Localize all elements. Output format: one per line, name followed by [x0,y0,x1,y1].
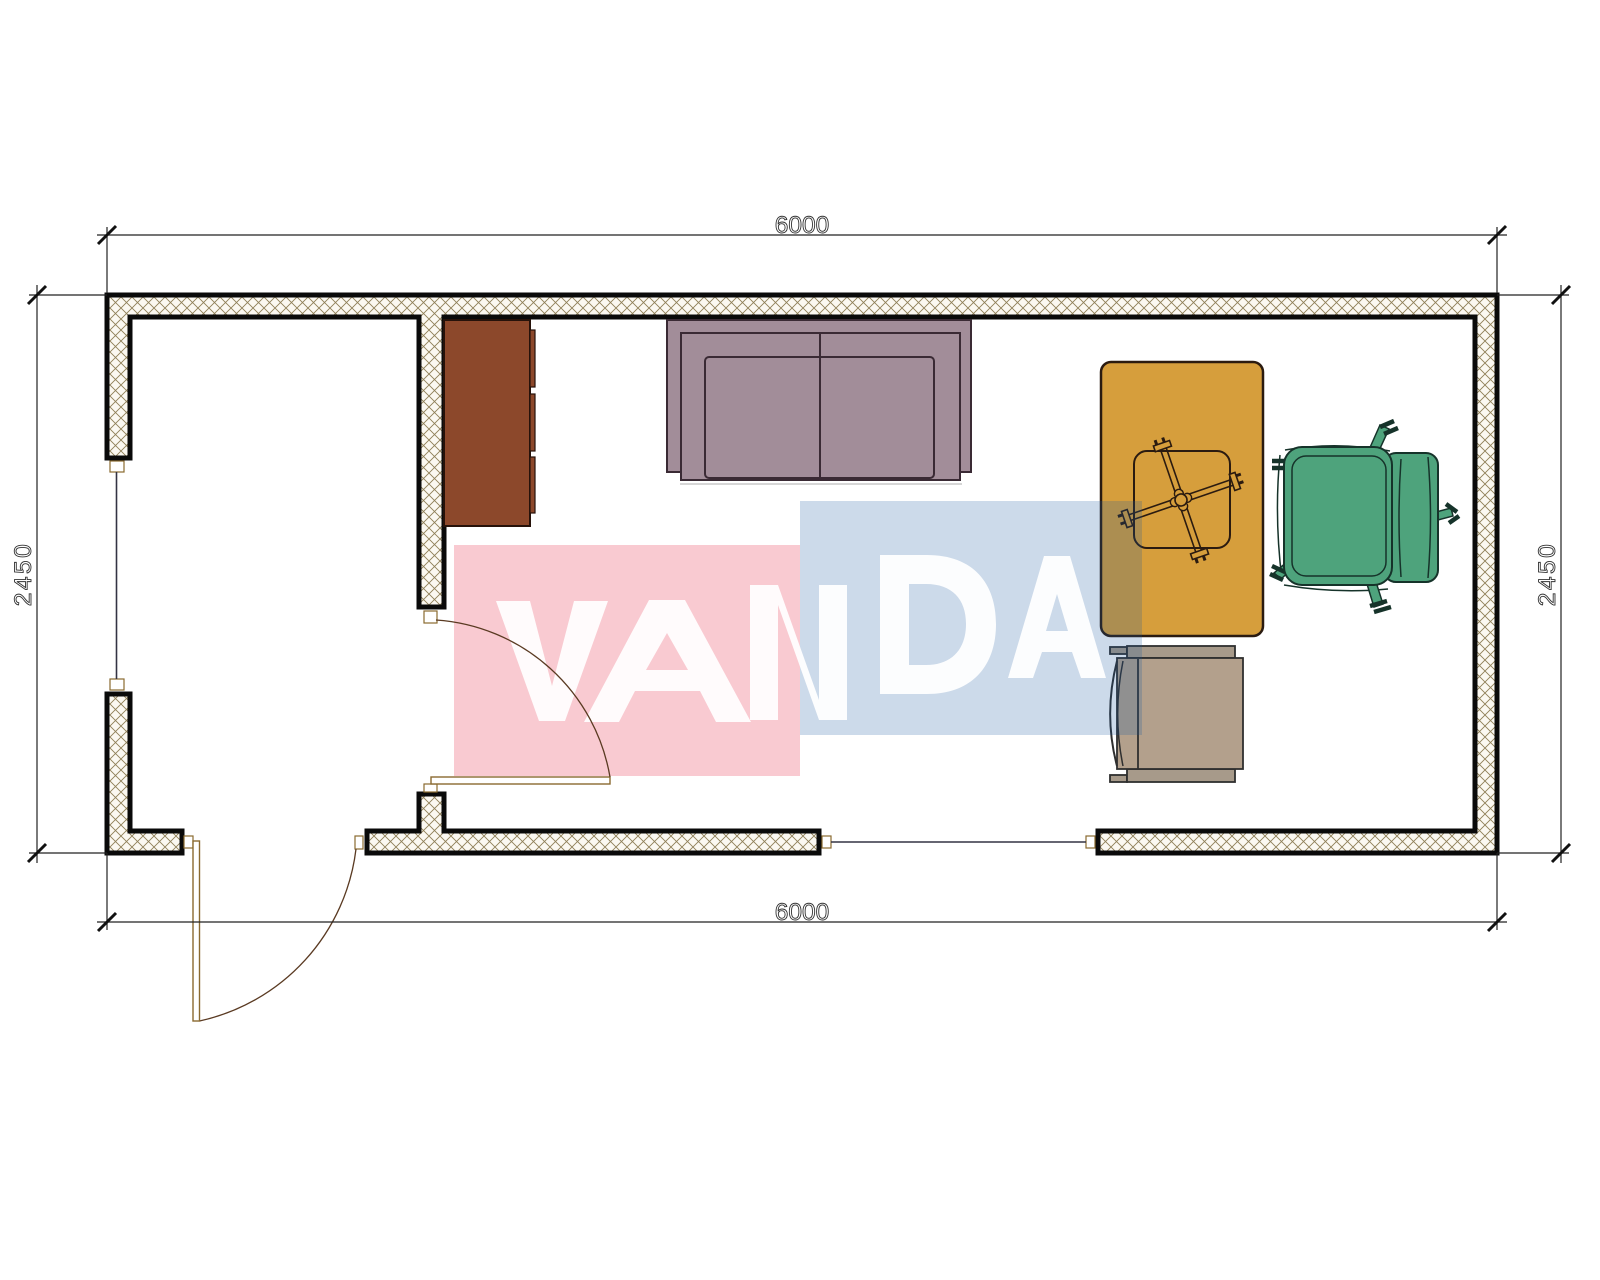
svg-text:2450: 2450 [10,542,37,607]
svg-text:6000: 6000 [775,212,830,239]
svg-text:6000: 6000 [775,899,830,926]
svg-text:2450: 2450 [1534,542,1561,607]
